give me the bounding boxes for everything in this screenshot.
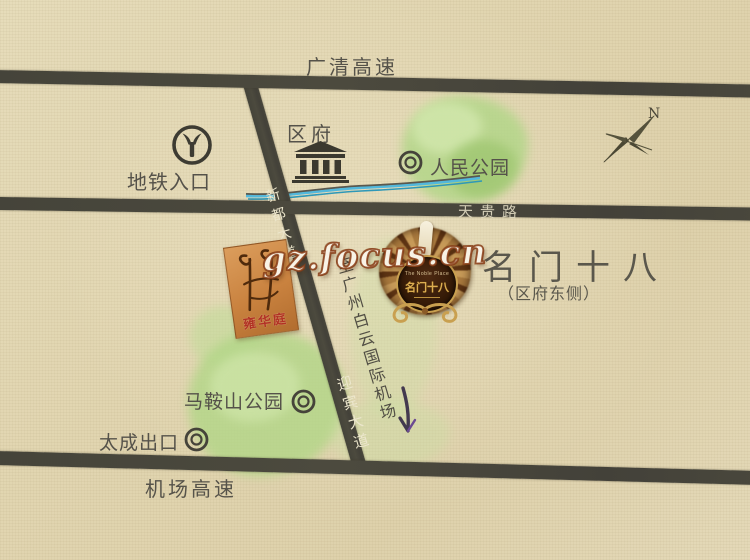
compass-north-label: N xyxy=(648,106,660,122)
crest-chinese-text: 名门十八 xyxy=(405,279,449,295)
project-location-note: （区府东侧） xyxy=(498,280,600,304)
maanshan-park-label: 马鞍山公园 xyxy=(184,387,284,414)
peoples-park-marker xyxy=(397,149,424,176)
crest-divider xyxy=(414,297,440,298)
site-watermark: gz.focus.cn xyxy=(261,232,487,280)
metro-icon xyxy=(169,122,215,168)
maanshan-park-marker xyxy=(290,388,317,415)
map-canvas: 广清高速 天贵路 机场高速 新都大道 迎宾大道 至广州白云国际机场 地铁入口 区… xyxy=(0,0,750,560)
peoples-park-label: 人民公园 xyxy=(430,153,510,180)
taicheng-exit-label: 太成出口 xyxy=(99,428,179,455)
road-tiangui xyxy=(0,197,750,221)
down-arrow-icon xyxy=(396,386,422,438)
label-airport-expressway: 机场高速 xyxy=(145,473,237,502)
taicheng-exit-marker xyxy=(183,426,210,453)
metro-entrance-label: 地铁入口 xyxy=(127,166,211,195)
crest-scroll-flourish xyxy=(389,301,461,327)
government-building-icon xyxy=(292,141,349,183)
